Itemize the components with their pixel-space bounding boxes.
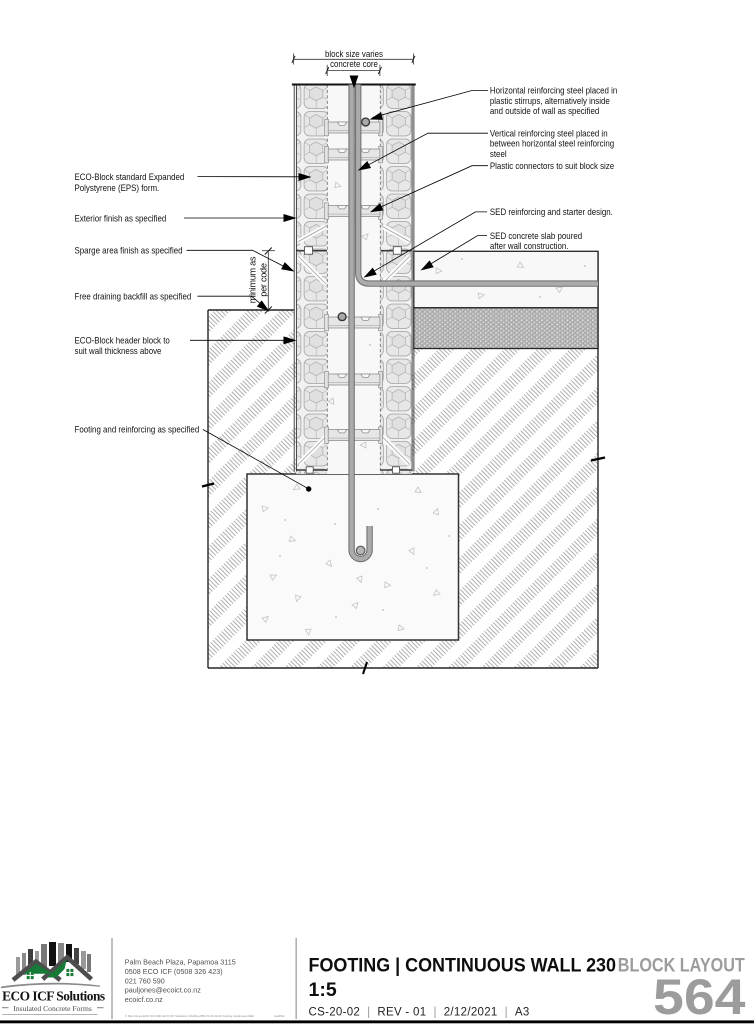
- svg-text:steel: steel: [490, 148, 507, 159]
- svg-text:Insulated Concrete Forms: Insulated Concrete Forms: [13, 1004, 91, 1013]
- svg-text:concrete core: concrete core: [330, 58, 378, 69]
- svg-text:and outside of wall as specifi: and outside of wall as specified: [490, 105, 600, 116]
- svg-text:Plastic connectors to suit blo: Plastic connectors to suit block size: [490, 160, 614, 171]
- svg-text:suit wall thickness above: suit wall thickness above: [75, 345, 162, 356]
- svg-text:ecoicf.co.nz: ecoicf.co.nz: [125, 995, 163, 1004]
- svg-text:plastic stirrups, alternativel: plastic stirrups, alternatively inside: [490, 95, 610, 106]
- svg-text:CS-20-02 | REV - 01 | 2/12: CS-20-02 | REV - 01 | 2/12/2021 | A3: [309, 1006, 530, 1018]
- svg-text:SED concrete slab poured: SED concrete slab poured: [490, 230, 582, 241]
- svg-text:ECO ICF Solutions: ECO ICF Solutions: [2, 988, 105, 1003]
- svg-text:Vertical reinforcing steel pla: Vertical reinforcing steel placed in: [490, 128, 608, 139]
- svg-text:pauljones@ecoict.co.nz: pauljones@ecoict.co.nz: [125, 986, 201, 995]
- svg-text:Free draining backfill as spec: Free draining backfill as specified: [75, 291, 192, 302]
- svg-text:Sparge area finish as specifie: Sparge area finish as specified: [75, 245, 183, 256]
- svg-text:0508 ECO ICF (0508 326 423): 0508 ECO ICF (0508 326 423): [125, 967, 223, 976]
- svg-text:ECO-Block header block to: ECO-Block header block to: [75, 335, 170, 346]
- svg-text:SED reinforcing and starter de: SED reinforcing and starter design.: [490, 207, 613, 218]
- svg-text:564: 564: [653, 968, 746, 1024]
- svg-text:Footing and reinforcing as spe: Footing and reinforcing as specified: [75, 424, 200, 435]
- svg-text:1:5: 1:5: [309, 979, 337, 1001]
- svg-text:between horizontal steel reinf: between horizontal steel reinforcing: [490, 138, 614, 149]
- svg-text:ECO-Block standard Expanded: ECO-Block standard Expanded: [75, 171, 185, 182]
- svg-text:© Paul Jones ECO ICF 2021 ECO: © Paul Jones ECO ICF 2021 ECO ICF Soluti…: [125, 1014, 254, 1018]
- svg-text:after wall construction.: after wall construction.: [490, 240, 569, 251]
- svg-text:Exterior finish as specified: Exterior finish as specified: [75, 213, 167, 224]
- svg-text:Polystyrene (EPS) form.: Polystyrene (EPS) form.: [75, 182, 160, 193]
- svg-text:Palm Beach Plaza, Papamoa 3115: Palm Beach Plaza, Papamoa 3115: [125, 958, 236, 967]
- svg-text:Horizontal reinforcing steel p: Horizontal reinforcing steel placed in: [490, 85, 618, 96]
- svg-text:LastPlot: LastPlot: [274, 1014, 285, 1018]
- svg-text:FOOTING | CONTINUOUS WALL 230: FOOTING | CONTINUOUS WALL 230: [309, 954, 617, 976]
- svg-text:021 760 590: 021 760 590: [125, 976, 165, 985]
